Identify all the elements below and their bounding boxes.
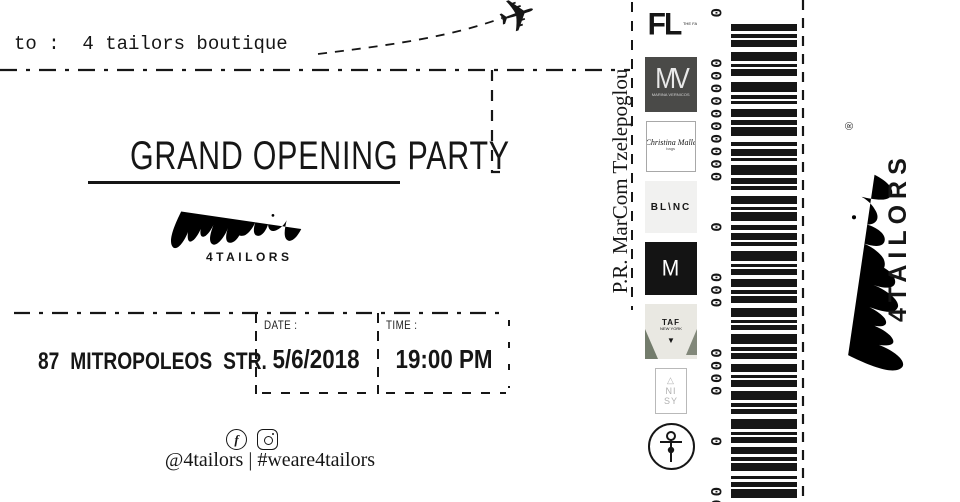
brand-name: 4TAILORS xyxy=(206,250,292,264)
sponsor-logo-blanc: BL\NC xyxy=(645,181,697,233)
barcode-bar xyxy=(731,264,797,267)
barcode-bar xyxy=(731,457,797,461)
barcode-bar xyxy=(731,178,797,184)
sponsor-logo-strip: FLTHE FASHION LABMVMARINA VERNICOSChrist… xyxy=(642,10,700,470)
barcode-bar xyxy=(731,82,797,92)
barcode-bar xyxy=(731,101,797,104)
barcode-bar xyxy=(731,325,797,330)
barcode xyxy=(731,24,797,500)
barcode-bar xyxy=(731,279,797,287)
barcode-bar xyxy=(731,463,797,471)
barcode-bar xyxy=(731,24,797,31)
barcode-bar xyxy=(731,447,797,454)
stub-brand-name: 4TAILORS xyxy=(884,152,913,322)
needle-pin-icon xyxy=(657,429,685,465)
barcode-bar xyxy=(731,149,797,156)
barcode-bar xyxy=(731,353,797,359)
page-title: GRAND OPENING PARTY xyxy=(70,134,420,179)
barcode-bar xyxy=(731,64,797,67)
barcode-bar xyxy=(731,52,797,61)
barcode-bar xyxy=(731,432,797,435)
flight-path-dashes xyxy=(318,18,502,54)
barcode-bar xyxy=(731,225,797,230)
sponsor-logo-mv: MVMARINA VERNICOS xyxy=(645,57,697,112)
barcode-bar xyxy=(731,296,797,303)
barcode-bar xyxy=(731,186,797,190)
barcode-bar xyxy=(731,109,797,117)
barcode-bar xyxy=(731,419,797,429)
date-label: DATE : xyxy=(264,318,297,332)
barcode-bar xyxy=(731,482,797,487)
barcode-bar xyxy=(731,34,797,38)
barcode-bar xyxy=(731,212,797,221)
pr-credit: P.R. MarCom Tzelepoglou xyxy=(600,16,640,346)
barcode-bar xyxy=(731,69,797,76)
barcode-bar xyxy=(731,95,797,99)
barcode-bar xyxy=(731,251,797,261)
barcode-bar xyxy=(731,409,797,414)
barcode-bar xyxy=(731,476,797,479)
date-value: 5/6/2018 xyxy=(268,344,364,375)
ticket-stub: ® 4TAILORS xyxy=(808,0,960,502)
barcode-bar xyxy=(731,489,797,498)
barcode-bar xyxy=(731,269,797,275)
stub-tailors-script-logo xyxy=(810,16,942,486)
airplane-icon: ✈ xyxy=(492,0,543,43)
time-label: TIME : xyxy=(386,318,417,332)
sponsor-logo-m: M xyxy=(645,242,697,295)
barcode-bar xyxy=(731,127,797,136)
barcode-bar xyxy=(731,364,797,372)
barcode-bar xyxy=(731,242,797,246)
social-handles: @4tailors | #weare4tailors xyxy=(120,449,420,472)
registered-mark: ® xyxy=(844,122,856,130)
sponsor-logo-cm: Christina Mallebags xyxy=(646,121,696,172)
barcode-bar xyxy=(731,290,797,294)
barcode-bar xyxy=(731,403,797,407)
time-value: 19:00 PM xyxy=(396,344,489,375)
facebook-icon xyxy=(226,429,247,450)
barcode-bar xyxy=(731,158,797,161)
barcode-bar xyxy=(731,120,797,125)
barcode-bar xyxy=(731,437,797,443)
barcode-bar xyxy=(731,165,797,175)
sponsor-logo-needle xyxy=(648,423,695,470)
sponsor-logo-fl: FLTHE FASHION LAB xyxy=(645,10,697,48)
barcode-bar xyxy=(731,207,797,210)
sponsor-logo-anisy: △NISY xyxy=(655,368,687,414)
title-underline xyxy=(88,181,400,184)
barcode-bar xyxy=(731,347,797,351)
barcode-bar xyxy=(731,334,797,344)
to-address-line: to : 4 tailors boutique xyxy=(14,33,288,55)
instagram-icon xyxy=(257,429,278,450)
barcode-bar xyxy=(731,308,797,317)
barcode-bar xyxy=(731,142,797,146)
invitation-ticket: to : 4 tailors boutique ✈ GRAND OPENING … xyxy=(0,0,960,502)
barcode-bar xyxy=(731,391,797,400)
sponsor-logo-taf: TAFNEW YORK▼ xyxy=(645,304,697,359)
barcode-bar xyxy=(731,196,797,204)
barcode-bar xyxy=(731,380,797,387)
barcode-digits: 0 0000000000 0 000 0000 0 00000000000 xyxy=(702,8,724,500)
barcode-bar xyxy=(731,233,797,240)
barcode-bar xyxy=(731,375,797,378)
barcode-bar xyxy=(731,320,797,323)
venue-address: 87 MITROPOLEOS STR. xyxy=(38,348,267,376)
barcode-bar xyxy=(731,40,797,47)
